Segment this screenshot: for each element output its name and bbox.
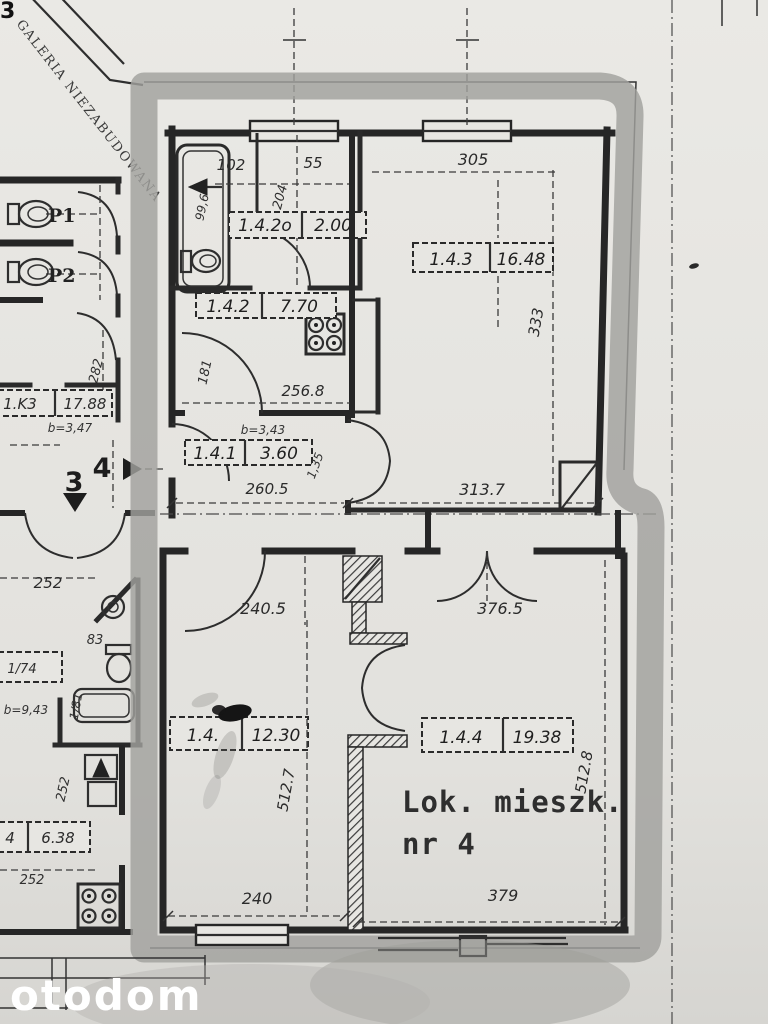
height-lower: b=9,43 — [4, 703, 48, 717]
room-area-1-4: 12.30 — [252, 726, 301, 746]
room-id-1-4-4: 1.4.4 — [439, 728, 482, 748]
dim-260-5: 260.5 — [246, 480, 289, 498]
room-area-hall: 3.60 — [260, 444, 298, 464]
small-room-area: 6.38 — [41, 829, 74, 847]
small-room-id: 4 — [5, 829, 15, 847]
dim-252-a: 252 — [34, 574, 63, 592]
dim-240: 240 — [242, 889, 273, 908]
dim-313-7: 313.7 — [459, 480, 506, 499]
room-id-hall: 1.4.1 — [193, 444, 236, 464]
corner-mark: 3 — [0, 0, 15, 24]
height-hall: b=3,43 — [241, 423, 285, 437]
room-area-1-4-4: 19.38 — [513, 728, 562, 748]
unit-caption-line2: nr 4 — [402, 827, 476, 861]
stairwell-id: 1.K3 — [3, 395, 37, 413]
room-area-bath: 2.00 — [314, 216, 352, 236]
stairwell-area: 17.88 — [64, 395, 107, 413]
window-symbol — [196, 925, 288, 945]
dim-305: 305 — [458, 150, 489, 169]
dim-55: 55 — [303, 154, 322, 172]
dim-252-c: 252 — [20, 873, 45, 888]
otodom-watermark: otodom — [10, 971, 202, 1020]
stair-number-4: 4 — [93, 453, 112, 484]
room-area-kitchen: 7.70 — [280, 297, 318, 317]
room-id-1-4-3: 1.4.3 — [429, 250, 472, 270]
room-id-1-4: 1.4. — [187, 726, 219, 746]
unit-caption-line1: Lok. mieszk. — [402, 785, 624, 819]
dim-379: 379 — [488, 886, 519, 905]
label-1-74: 1/74 — [7, 662, 36, 677]
dim-240-5: 240.5 — [240, 599, 286, 618]
wc1-label: P1 — [48, 205, 76, 227]
wc2-label: P2 — [48, 265, 76, 287]
floor-plan-scan: 3 GALERIA NIEZABUDOWANA P1 — [0, 0, 768, 1024]
dim-83: 83 — [87, 633, 104, 648]
dim-102: 102 — [217, 156, 246, 174]
dim-256-8: 256.8 — [282, 382, 325, 400]
room-id-bath: 1.4.2o — [238, 216, 292, 236]
room-id-kitchen: 1.4.2 — [206, 297, 249, 317]
dim-376-5: 376.5 — [477, 599, 523, 618]
height-stair: b=3,47 — [48, 421, 93, 435]
room-area-1-4-3: 16.48 — [497, 250, 546, 270]
